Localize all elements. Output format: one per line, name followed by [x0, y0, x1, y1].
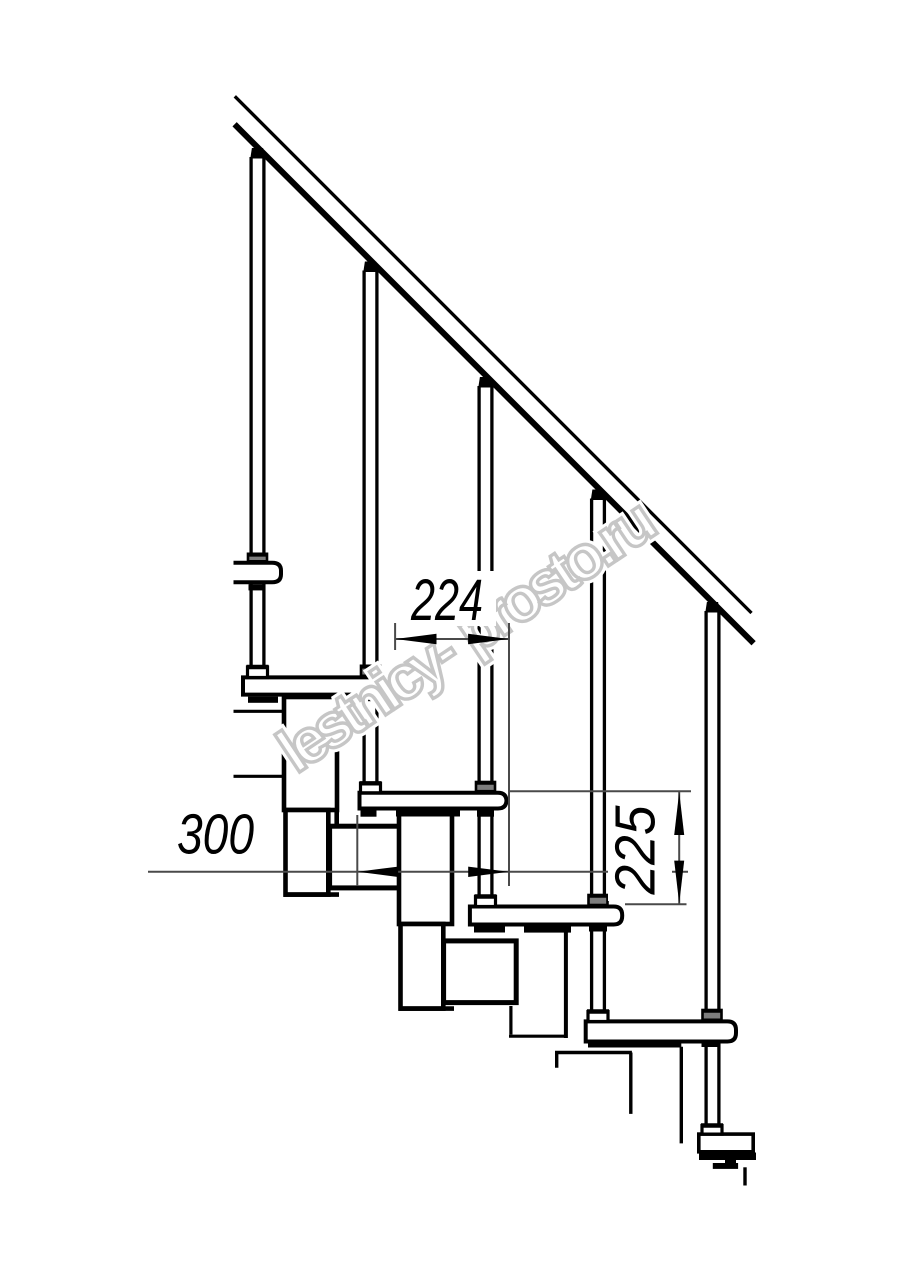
svg-text:225: 225	[604, 805, 668, 895]
svg-text:224: 224	[410, 568, 483, 633]
svg-text:300: 300	[177, 803, 254, 867]
